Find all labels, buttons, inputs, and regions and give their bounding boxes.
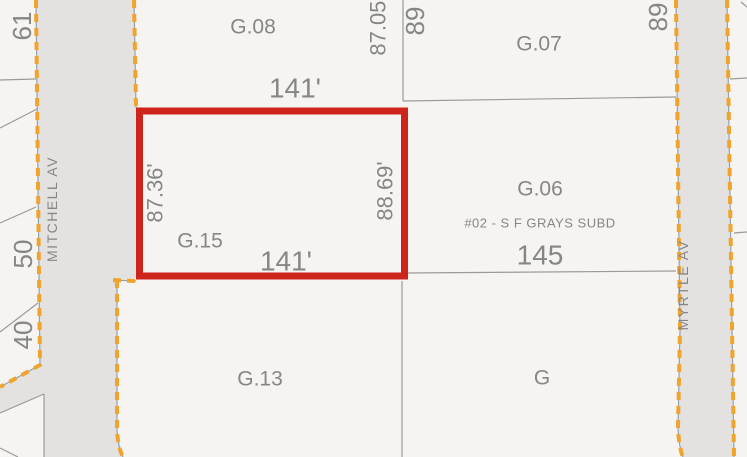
parcel-label-g13: G.13 (237, 368, 283, 391)
house-number-50: 50 (8, 240, 38, 269)
dimension-g15-left: 87.36' (143, 163, 168, 222)
parcel-map: 61 50 40 MITCHELL AV MYRTLE AV G.08 G.07… (0, 0, 747, 457)
house-number-40: 40 (8, 321, 38, 350)
parcel-label-g: G (534, 367, 550, 390)
house-number-145: 145 (517, 240, 564, 271)
parcel-label-g07: G.07 (516, 33, 562, 56)
parcel-label-g06: G.06 (517, 178, 563, 201)
parcel-label-g08: G.08 (230, 16, 276, 39)
parcel-label-g15: G.15 (177, 230, 223, 253)
street-label-myrtle-av: MYRTLE AV (675, 240, 691, 331)
dimension-g15-right: 88.69' (373, 161, 398, 220)
dimension-g15-top: 141' (269, 73, 321, 104)
street-label-mitchell-av: MITCHELL AV (44, 156, 60, 262)
subdivision-label: #02 - S F GRAYS SUBD (464, 216, 615, 231)
road-myrtle-av[interactable] (676, 0, 734, 457)
house-number-89-west: 89 (400, 7, 430, 36)
house-number-89-east: 89 (643, 3, 673, 32)
parcel-g[interactable] (402, 271, 681, 457)
dimension-g08-east: 87.05' (366, 0, 391, 56)
house-number-61: 61 (7, 12, 37, 41)
dimension-g15-bottom: 141' (260, 246, 312, 277)
